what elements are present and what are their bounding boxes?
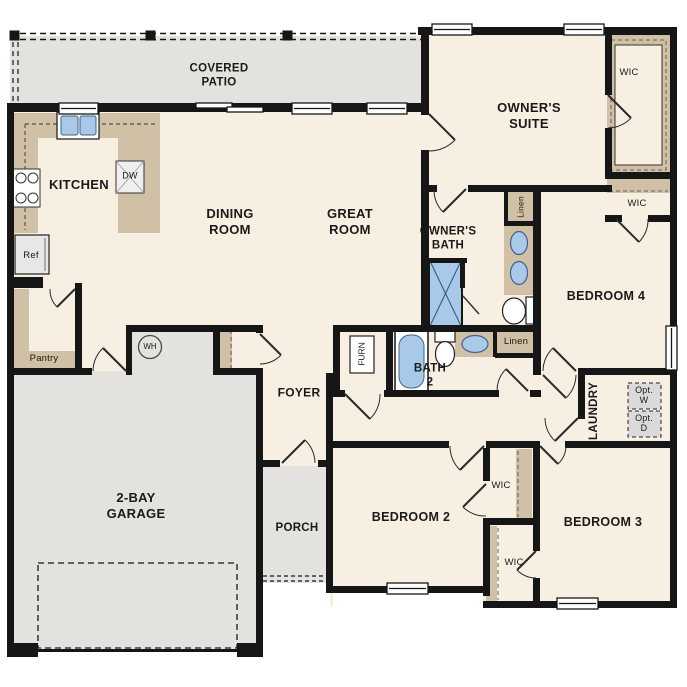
wall-segment — [263, 460, 280, 467]
laundry-label: LAUNDRY — [587, 382, 601, 440]
outside-mask — [333, 593, 483, 687]
wall-segment — [13, 277, 43, 288]
patio-post — [146, 31, 155, 40]
window — [367, 103, 407, 114]
opt-washer-label: Opt. W — [635, 386, 653, 406]
wall-segment — [213, 325, 220, 375]
bedroom4-label: BEDROOM 4 — [567, 289, 645, 305]
dining-room-label: DINING ROOM — [206, 206, 253, 239]
window — [666, 326, 677, 370]
outside-mask — [260, 583, 330, 687]
wall-segment — [126, 325, 263, 332]
window — [564, 24, 604, 35]
wall-segment — [648, 215, 677, 222]
wall-segment — [333, 332, 340, 397]
pantry-label: Pantry — [30, 353, 59, 365]
wall-segment — [468, 185, 612, 192]
wall-segment — [13, 368, 92, 375]
wall-segment — [670, 27, 677, 608]
wall-segment — [605, 128, 612, 179]
window — [557, 598, 598, 609]
kitchen-label: KITCHEN — [49, 177, 109, 193]
wall-segment — [75, 283, 82, 368]
bath2-linen-label: Linen — [504, 336, 528, 348]
wall-segment — [333, 441, 449, 448]
window — [59, 103, 98, 114]
bedroom3-label: BEDROOM 3 — [564, 515, 642, 531]
wall-segment — [486, 441, 540, 448]
wall-segment — [495, 353, 535, 358]
wall-segment — [237, 643, 263, 657]
opt-dryer-label: Opt. D — [635, 414, 653, 434]
window — [292, 103, 332, 114]
wall-segment — [483, 518, 540, 525]
outside-mask — [483, 608, 687, 687]
vanity-sink — [511, 232, 528, 255]
wall-segment — [605, 215, 622, 222]
stove-burner — [28, 173, 38, 183]
owners-wic-label: WIC — [619, 67, 638, 79]
owners-linen-label: Linen — [516, 196, 527, 218]
wall-segment — [256, 368, 263, 650]
wall-segment — [530, 390, 541, 397]
wall-segment — [504, 221, 537, 226]
stove-burner — [16, 193, 26, 203]
patio-post — [10, 31, 19, 40]
owners-bath-label: OWNER'S BATH — [420, 225, 477, 254]
stove-burner — [16, 173, 26, 183]
wall-segment — [7, 103, 14, 657]
wall-segment — [213, 368, 263, 375]
coat-closet-shelf — [220, 328, 232, 372]
wall-segment — [565, 441, 677, 448]
sink-basin — [80, 116, 96, 135]
sink-basin — [61, 116, 78, 135]
wall-segment — [493, 330, 497, 357]
wall-segment — [605, 34, 612, 95]
wall-segment — [483, 448, 490, 481]
window — [432, 24, 472, 35]
wall-segment — [578, 375, 585, 419]
wall-segment — [504, 190, 508, 224]
wall-segment — [326, 373, 333, 593]
owners-suite-label: OWNER'S SUITE — [497, 100, 561, 133]
bath2-label: BATH 2 — [414, 362, 446, 391]
wall-segment — [333, 390, 345, 397]
window — [387, 583, 428, 594]
toilet-bowl — [503, 298, 526, 324]
foyer-label: FOYER — [278, 386, 321, 401]
floor-plan-drawing — [0, 0, 687, 687]
wall-segment — [429, 185, 437, 192]
garage-door-line — [38, 649, 237, 652]
bedroom2-label: BEDROOM 2 — [372, 510, 450, 526]
wall-segment — [126, 325, 132, 375]
owners-wic-floor — [615, 45, 662, 165]
wall-segment — [7, 643, 38, 657]
wall-segment — [384, 390, 499, 397]
vanity-sink — [511, 262, 528, 285]
wall-segment — [318, 460, 330, 467]
patio-post — [283, 31, 292, 40]
wall-segment — [421, 30, 429, 115]
wall-segment — [605, 172, 677, 179]
furnace-label: FURN — [357, 342, 368, 366]
stove-burner — [28, 193, 38, 203]
wall-segment — [460, 258, 465, 288]
wall-segment — [333, 325, 541, 332]
floor-plan: COVERED PATIO KITCHEN DINING ROOM GREAT … — [0, 0, 687, 687]
wall-segment — [483, 518, 490, 596]
bed4-wic-label: WIC — [627, 198, 646, 210]
toilet-tank — [435, 331, 455, 342]
wall-segment — [386, 332, 393, 397]
wall-segment — [533, 448, 540, 551]
bed2-wic-label: WIC — [491, 480, 510, 492]
great-room-label: GREAT ROOM — [327, 206, 373, 239]
bed3-wic-label: WIC — [504, 557, 523, 569]
dishwasher-label: DW — [122, 170, 137, 181]
wall-segment — [533, 192, 541, 375]
porch-label: PORCH — [275, 521, 318, 535]
wall-segment — [578, 368, 677, 375]
water-heater-label: WH — [143, 342, 156, 352]
bed2-wic-shelf — [516, 449, 532, 519]
bath2-sink — [462, 336, 488, 353]
covered-patio-label: COVERED PATIO — [190, 62, 249, 91]
garage-label: 2-BAY GARAGE — [107, 490, 166, 523]
refrigerator-label: Ref — [23, 250, 38, 262]
